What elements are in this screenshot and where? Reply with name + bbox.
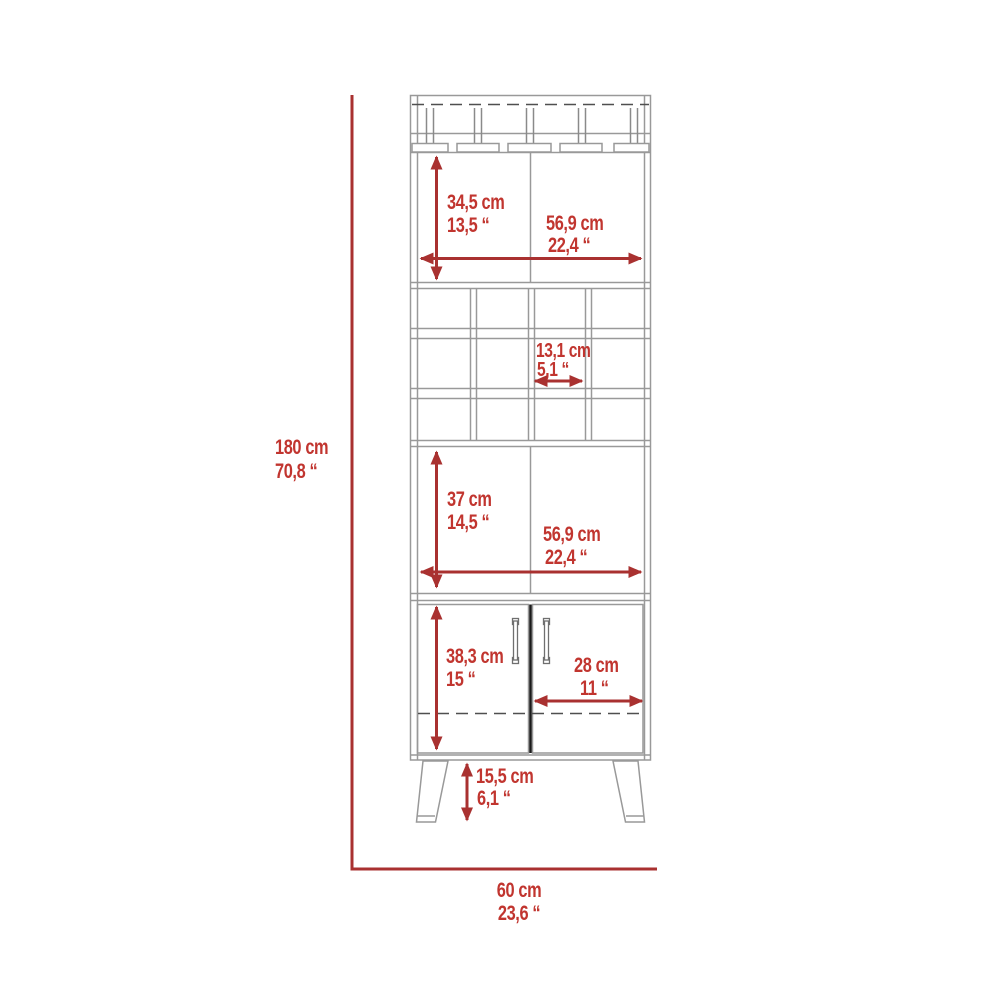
label-top-shelf-width-in: 22,4 “ bbox=[548, 233, 590, 256]
label-overall-height-cm: 180 cm bbox=[275, 435, 328, 458]
label-top-shelf-height-cm: 34,5 cm bbox=[447, 190, 504, 213]
leg-left bbox=[417, 761, 449, 822]
label-top-shelf-height-in: 13,5 “ bbox=[447, 213, 489, 236]
door-handle-right bbox=[544, 619, 550, 664]
label-door-width-cm: 28 cm bbox=[574, 653, 618, 676]
stemware-rack bbox=[411, 105, 650, 153]
label-overall-height-in: 70,8 “ bbox=[275, 459, 317, 482]
bar-cabinet-dimension-diagram: 34,5 cm 13,5 “ 56,9 cm 22,4 “ 13,1 cm 5,… bbox=[0, 0, 1000, 1000]
label-door-section-height-cm: 38,3 cm bbox=[446, 644, 503, 667]
label-top-shelf-width-cm: 56,9 cm bbox=[546, 211, 603, 234]
door-handle-left bbox=[513, 619, 519, 664]
label-door-width-in: 11 “ bbox=[580, 676, 609, 699]
label-middle-shelf-width-cm: 56,9 cm bbox=[543, 522, 600, 545]
stemware-rails bbox=[412, 144, 649, 153]
label-overall-width-cm: 60 cm bbox=[497, 878, 541, 901]
label-middle-shelf-width-in: 22,4 “ bbox=[545, 545, 587, 568]
label-leg-height-cm: 15,5 cm bbox=[476, 764, 533, 787]
stemware-hangers bbox=[427, 108, 638, 143]
label-leg-height-in: 6,1 “ bbox=[477, 786, 511, 809]
label-middle-shelf-height-cm: 37 cm bbox=[447, 487, 491, 510]
label-wine-cubby-width-in: 5,1 “ bbox=[537, 358, 569, 380]
wine-cubby-grid bbox=[411, 289, 650, 441]
leg-right bbox=[613, 761, 645, 822]
label-middle-shelf-height-in: 14,5 “ bbox=[447, 510, 489, 533]
label-door-section-height-in: 15 “ bbox=[446, 667, 475, 690]
diagram-canvas: 34,5 cm 13,5 “ 56,9 cm 22,4 “ 13,1 cm 5,… bbox=[0, 0, 1000, 1000]
label-overall-width-in: 23,6 “ bbox=[498, 901, 540, 924]
dimension-labels: 34,5 cm 13,5 “ 56,9 cm 22,4 “ 13,1 cm 5,… bbox=[275, 190, 618, 924]
